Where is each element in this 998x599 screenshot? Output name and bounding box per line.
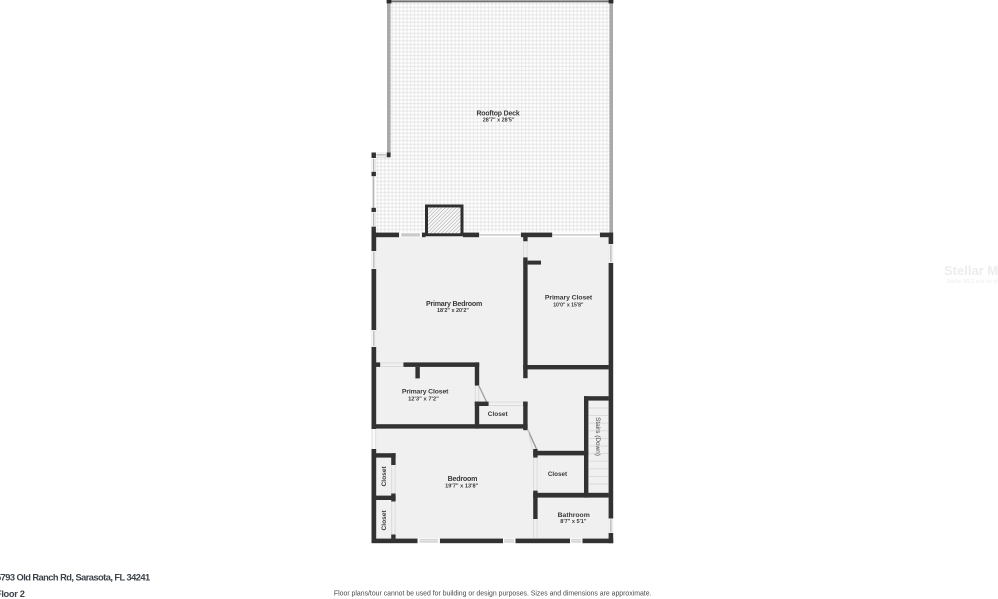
svg-text:Bedroom: Bedroom	[448, 475, 478, 483]
svg-text:10'0" x 15'8": 10'0" x 15'8"	[553, 302, 584, 308]
svg-text:8'7" x 5'1": 8'7" x 5'1"	[560, 519, 587, 525]
svg-text:18'2" x 20'2": 18'2" x 20'2"	[437, 308, 469, 314]
svg-text:Primary Bedroom: Primary Bedroom	[426, 300, 482, 308]
svg-text:Closet: Closet	[381, 465, 388, 486]
svg-text:5793 Old Ranch Rd, Sarasota, F: 5793 Old Ranch Rd, Sarasota, FL 34241	[0, 573, 150, 583]
svg-text:Closet: Closet	[548, 471, 568, 478]
svg-text:12'3" x 7'2": 12'3" x 7'2"	[408, 396, 439, 402]
svg-text:28'7" x 28'5": 28'7" x 28'5"	[483, 117, 515, 123]
svg-text:Primary Closet: Primary Closet	[402, 388, 449, 395]
svg-text:Stairs (Down): Stairs (Down)	[594, 417, 601, 456]
svg-text:Stellar MLS: Stellar MLS	[944, 263, 998, 278]
svg-text:Primary Closet: Primary Closet	[545, 295, 593, 302]
svg-text:Floor 2: Floor 2	[0, 589, 25, 599]
svg-text:19'7" x 13'8": 19'7" x 13'8"	[445, 484, 478, 490]
svg-text:Closet: Closet	[488, 411, 509, 418]
svg-text:Closet: Closet	[381, 509, 388, 530]
svg-text:Stellar MLS and its aff: Stellar MLS and its aff	[947, 279, 998, 285]
svg-text:Floor plans/tour cannot be use: Floor plans/tour cannot be used for buil…	[334, 591, 652, 598]
